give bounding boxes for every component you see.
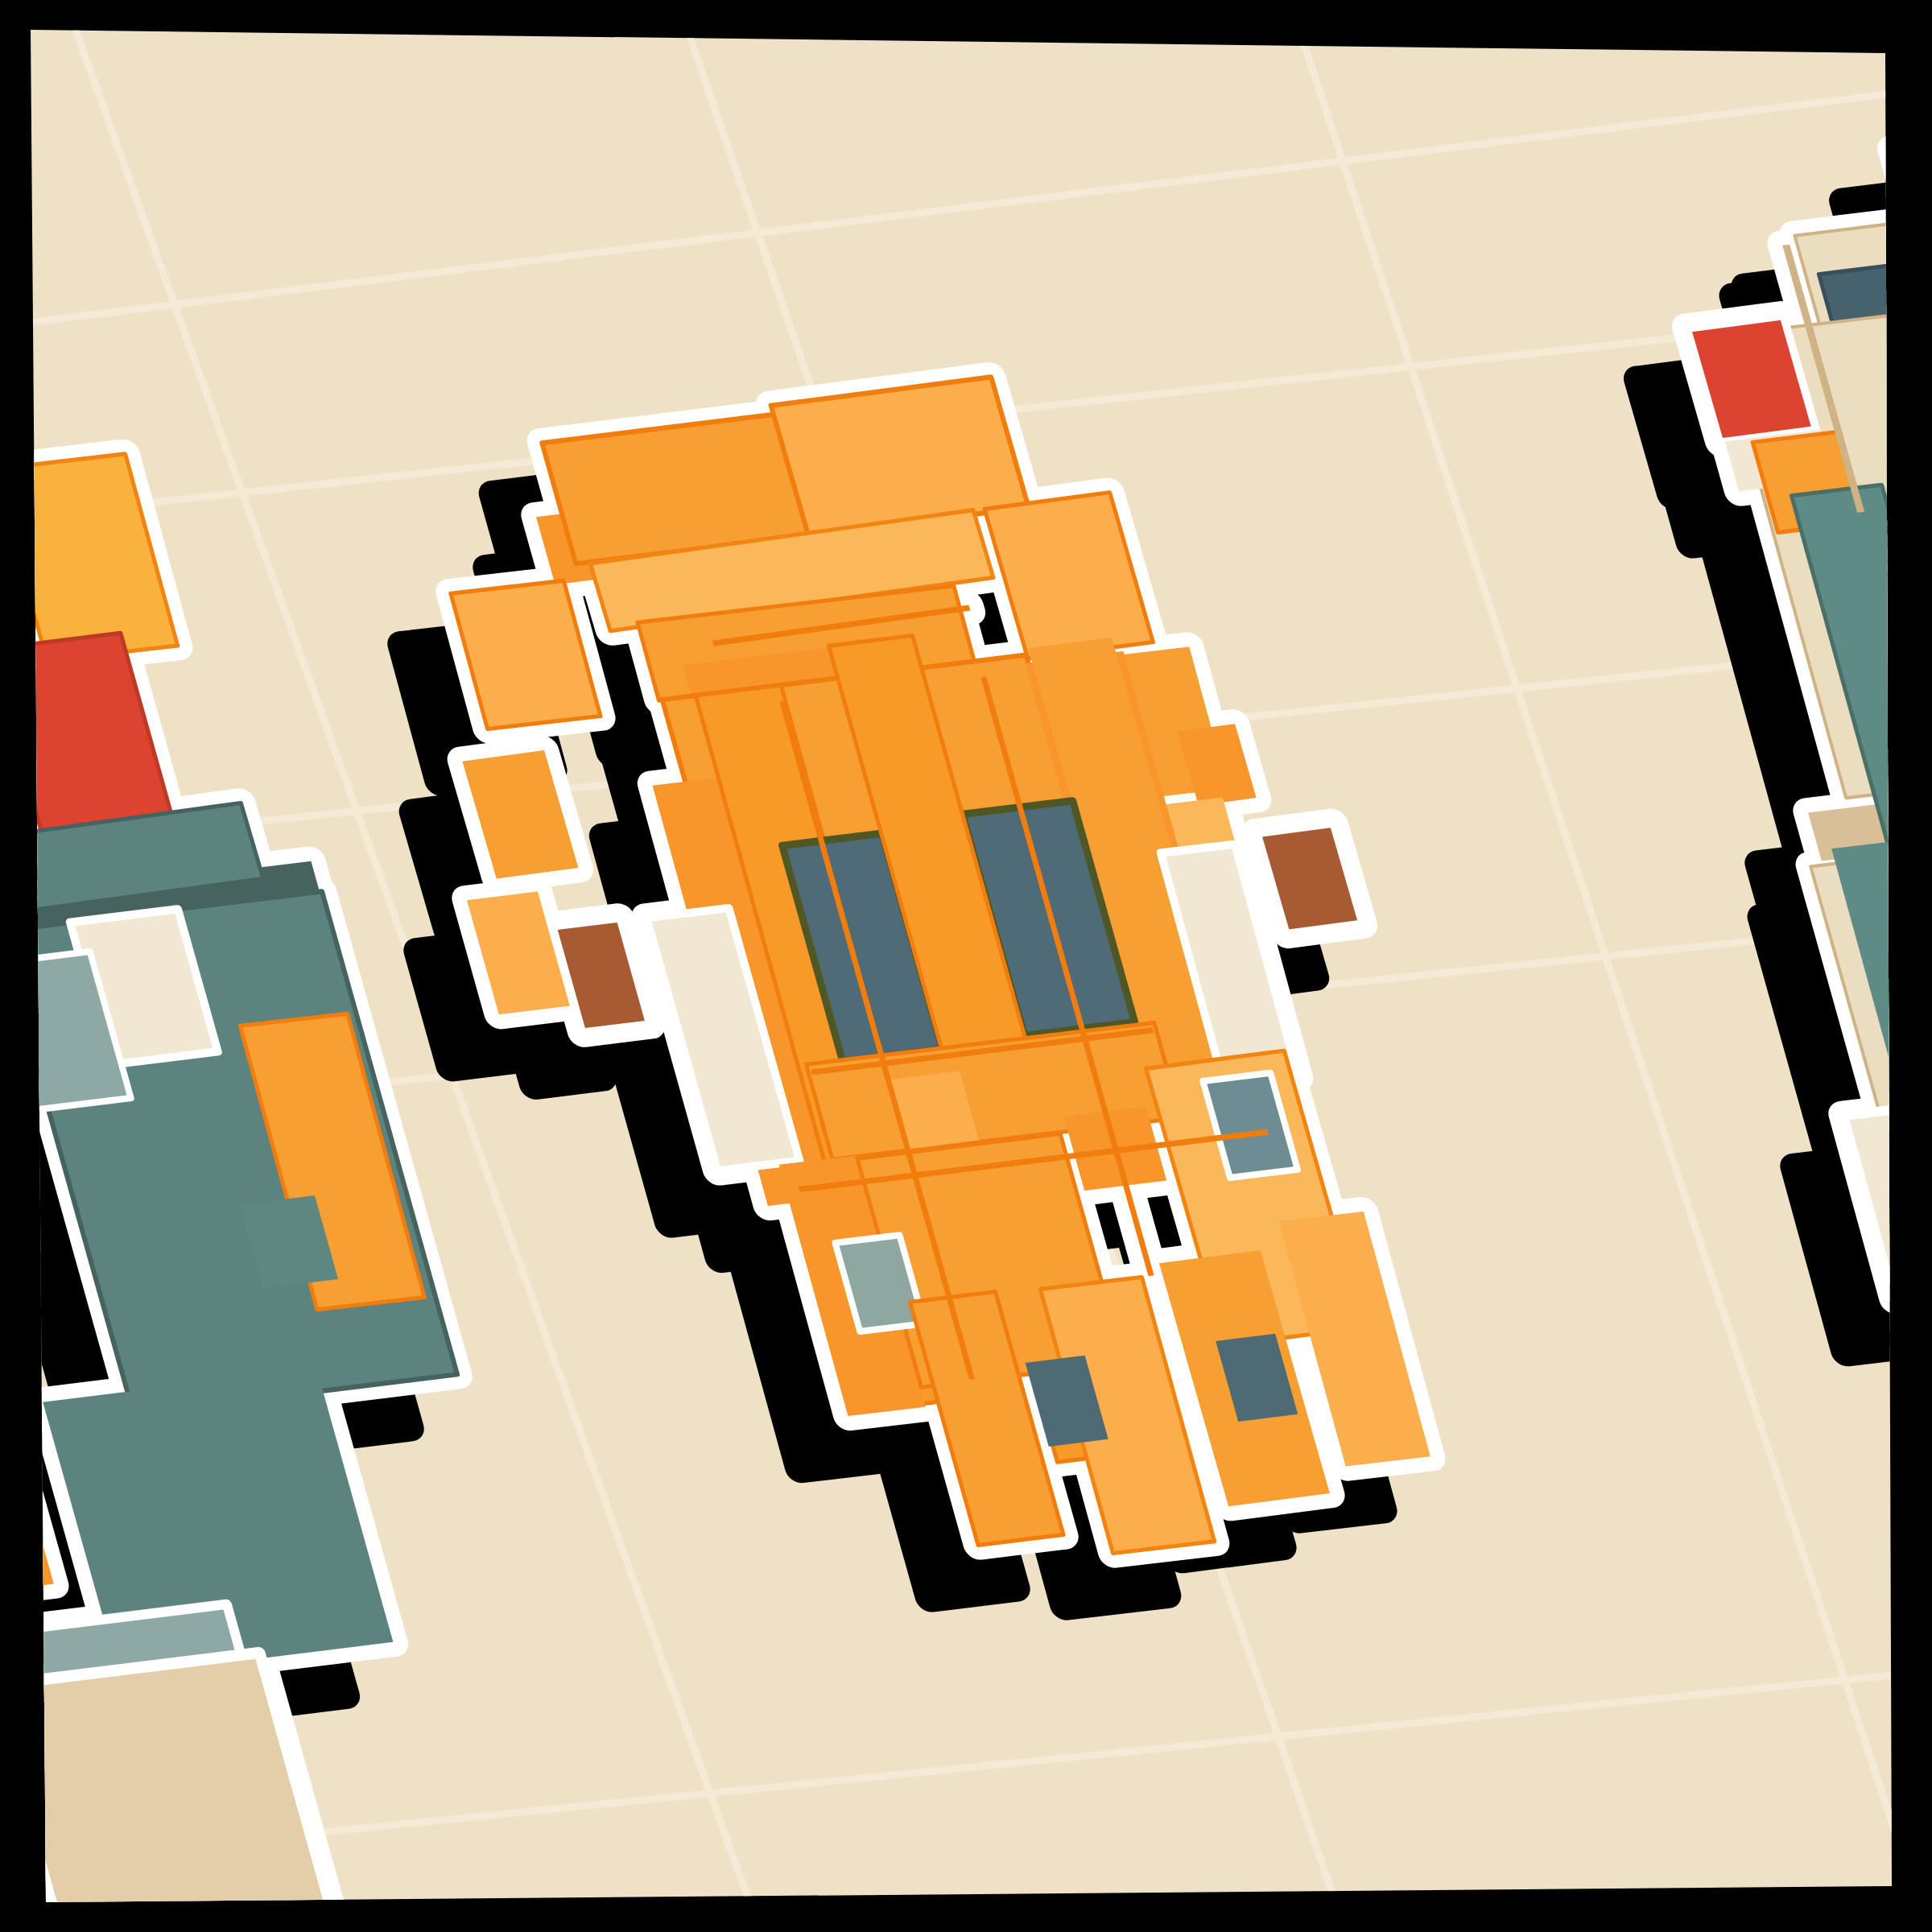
scene-svg (0, 0, 1932, 1932)
artwork-stage (0, 0, 1932, 1932)
